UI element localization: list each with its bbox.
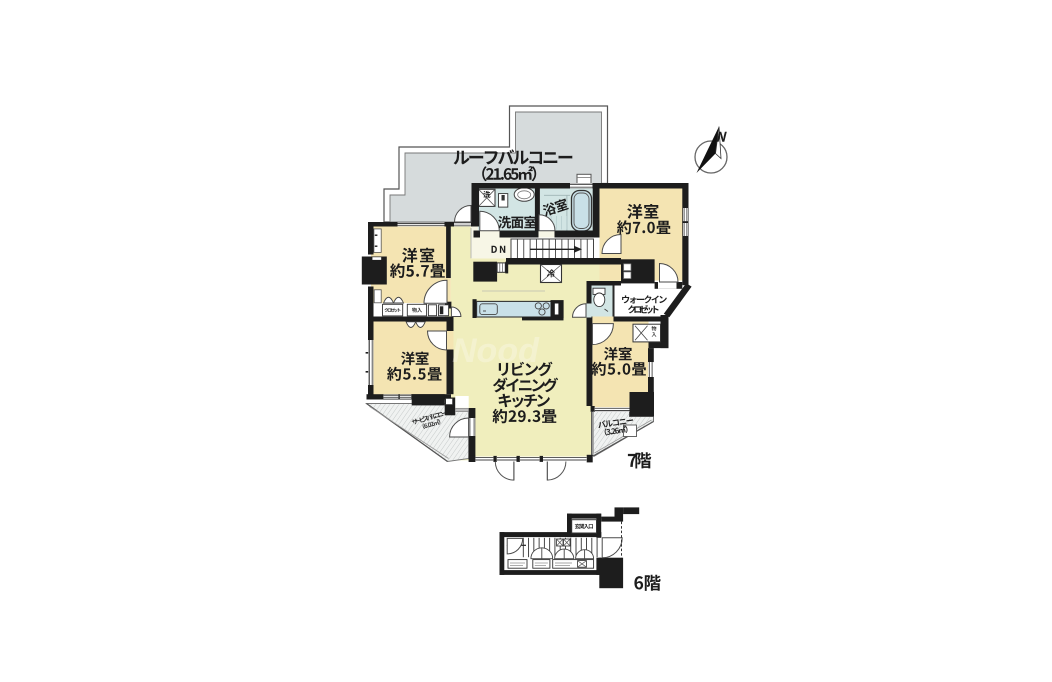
svg-text:Nood: Nood bbox=[452, 332, 540, 370]
